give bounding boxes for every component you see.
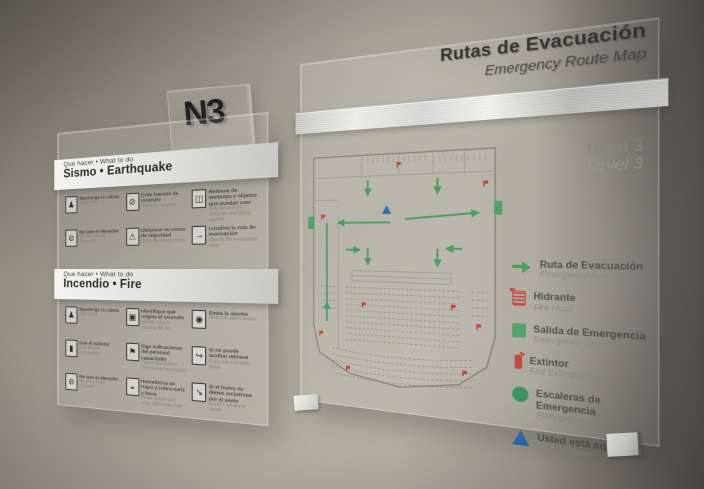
person-calm-icon: ♟ bbox=[65, 196, 77, 214]
pictogram-caption: Use el extintor Use the fire extinguishe… bbox=[79, 340, 120, 358]
level-label: Nivel 3 Level 3 bbox=[587, 137, 644, 175]
pictogram-item: ◒ Humedezca un trapo y cubra nariz y boc… bbox=[126, 377, 190, 418]
safety-zone-icon: ⚠ bbox=[126, 228, 139, 246]
caption-en: Use the fire extinguisher bbox=[79, 346, 120, 359]
what-to-do-section: Que hacer • What to do Sismo • Earthquak… bbox=[58, 143, 267, 263]
no-elevator-icon: ⊘ bbox=[65, 229, 77, 246]
stairs-circle-icon bbox=[512, 386, 528, 403]
pictogram-item: ▣ Identifique qué origina el incendio Id… bbox=[126, 308, 190, 346]
caption-en: Stay calm bbox=[79, 312, 120, 318]
caption-en: Stay calm bbox=[79, 199, 120, 206]
caption-en: Identify the evacuation route bbox=[209, 237, 258, 249]
pictogram-caption: Mantenga la calma Stay calm bbox=[79, 194, 120, 207]
legend-text: Extintor Fire Extinguisher bbox=[530, 356, 601, 384]
hydrant-icon bbox=[512, 291, 526, 307]
pictogram-caption: Siga indicaciones del personal capacitad… bbox=[141, 343, 186, 374]
route-arrow-icon bbox=[512, 259, 532, 276]
brushed-metal-band bbox=[295, 78, 668, 135]
fire-origin-icon: ▣ bbox=[126, 308, 139, 326]
crawl-low-icon: ↘ bbox=[192, 382, 207, 402]
pictogram-item: ↪ Si no puede auxiliar retírese If you c… bbox=[192, 346, 262, 388]
pictogram-caption: No use el elevador Do not use the elevat… bbox=[79, 374, 120, 393]
legend-item: Escaleras de Emergencia Emergency Stairs bbox=[512, 386, 658, 436]
caption-en: Identify what is causing the fire bbox=[141, 320, 186, 332]
pictogram-item: ⊘ No use el elevador Do not use the elev… bbox=[65, 228, 124, 263]
caption-en: Go to the safety zones bbox=[141, 238, 186, 244]
route-exit-icon: → bbox=[192, 226, 207, 245]
pictogram-item: ⊘ No use el elevador Do not use the elev… bbox=[65, 373, 124, 412]
legend-text: Usted está aquí You are here bbox=[537, 432, 616, 465]
plan-outline bbox=[314, 148, 495, 398]
section-header-main: Incendio • Fire bbox=[63, 278, 278, 293]
pictogram-item: ⊘ Evite fuentes de incendio Avoid fire s… bbox=[126, 190, 190, 228]
what-to-do-sign: Que hacer • What to do Sismo • Earthquak… bbox=[57, 112, 268, 427]
pictogram-caption: Si el humo es denso arrástrese por el su… bbox=[209, 384, 258, 418]
pictogram-item: ♟ Mantenga la calma Stay calm bbox=[65, 193, 124, 229]
pictogram-caption: Si no puede auxiliar retírese If you can… bbox=[209, 347, 258, 373]
caption-en: Avoid fire sources bbox=[141, 202, 186, 209]
person-calm-icon: ♟ bbox=[65, 306, 77, 324]
legend-item: Salida de Emergencia Emergency Exit bbox=[512, 322, 658, 354]
mounting-clip-right bbox=[606, 432, 641, 457]
wet-cloth-icon: ◒ bbox=[126, 377, 139, 396]
legend-text: Salida de Emergencia Emergency Exit bbox=[533, 324, 645, 353]
caption-en: Follow instructions from trained personn… bbox=[141, 361, 186, 375]
pictogram-item: ♟ Mantenga la calma Stay calm bbox=[65, 306, 124, 342]
you-are-here-triangle-icon bbox=[512, 429, 529, 447]
no-elevator-icon: ⊘ bbox=[65, 373, 77, 391]
alarm-button-icon: ◉ bbox=[192, 310, 207, 329]
leave-if-no-help-icon: ↪ bbox=[192, 346, 207, 366]
wall-photo: N3 Que hacer • What to do Sismo • Earthq… bbox=[0, 0, 704, 489]
pictogram-item: → Localice la ruta de evacuación Identif… bbox=[192, 224, 262, 262]
falling-objects-icon: ◫ bbox=[192, 189, 207, 208]
pictogram-item: ◉ Emita la alarma Push the alarm button bbox=[192, 310, 262, 350]
caption-en: If you can not help, leave bbox=[209, 359, 258, 373]
pictogram-caption: Mantenga la calma Stay calm bbox=[79, 307, 120, 319]
follow-staff-icon: ⚑ bbox=[126, 343, 139, 362]
pictogram-item: ⚠ Ubíquese en zonas de seguridad Go to t… bbox=[126, 226, 190, 263]
legend-text: Escaleras de Emergencia Emergency Stairs bbox=[536, 389, 658, 436]
caption-en: Stay away from windows and falling objec… bbox=[209, 205, 258, 224]
legend-label-en: Fire Hose bbox=[533, 302, 575, 314]
caption-en: Do not use the elevator bbox=[79, 234, 120, 245]
pictogram-item: ↘ Si el humo es denso arrástrese por el … bbox=[192, 382, 262, 425]
pictogram-caption: Identifique qué origina el incendio Iden… bbox=[141, 308, 186, 332]
extinguisher-use-icon: ▮ bbox=[65, 339, 77, 357]
no-fire-sources-icon: ⊘ bbox=[126, 193, 139, 212]
pictogram-caption: Localice la ruta de evacuación Identify … bbox=[209, 224, 258, 248]
legend-item: Hidrante Fire Hose bbox=[512, 291, 658, 319]
pictogram-caption: Humedezca un trapo y cubra nariz y boca … bbox=[141, 378, 186, 410]
pictogram-caption: Retírese de ventanas y objetos que pueda… bbox=[209, 186, 258, 223]
what-to-do-sections: Que hacer • What to do Sismo • Earthquak… bbox=[58, 113, 267, 425]
legend-label-en: Emergency Route bbox=[540, 270, 644, 284]
what-to-do-section: Que hacer • What to do Incendio • Fire ♟… bbox=[58, 269, 267, 426]
pictogram-caption: Evite fuentes de incendio Avoid fire sou… bbox=[141, 190, 186, 209]
pictogram-caption: Emita la alarma Push the alarm button bbox=[209, 310, 258, 323]
extinguisher-icon bbox=[515, 355, 522, 370]
pictogram-grid: ♟ Mantenga la calma Stay calm ⊘ Evite fu… bbox=[58, 178, 267, 263]
caption-en: Push the alarm button bbox=[209, 316, 258, 323]
legend-item: Ruta de Evacuación Emergency Route bbox=[512, 259, 658, 284]
pictogram-item: ⚑ Siga indicaciones del personal capacit… bbox=[126, 343, 190, 383]
exit-square-icon bbox=[512, 322, 526, 337]
level-label-en: Level 3 bbox=[587, 155, 644, 175]
pictogram-caption: No use el elevador Do not use the elevat… bbox=[79, 228, 120, 245]
legend-item: Extintor Fire Extinguisher bbox=[512, 354, 658, 389]
mounting-clip-left bbox=[294, 394, 319, 411]
evacuation-map-sign: Rutas de Evacuación Emergency Route Map … bbox=[300, 17, 659, 447]
section-header-strip: Que hacer • What to do Incendio • Fire bbox=[54, 269, 278, 304]
legend-text: Ruta de Evacuación Emergency Route bbox=[540, 259, 644, 283]
pictogram-grid: ♟ Mantenga la calma Stay calm ▣ Identifi… bbox=[58, 299, 267, 426]
pictogram-item: ◫ Retírese de ventanas y objetos que pue… bbox=[192, 186, 262, 226]
floor-plan-map bbox=[308, 141, 502, 426]
pictogram-item: ▮ Use el extintor Use the fire extinguis… bbox=[65, 339, 124, 377]
pictogram-caption: Ubíquese en zonas de seguridad Go to the… bbox=[141, 226, 186, 244]
map-title: Rutas de Evacuación Emergency Route Map bbox=[440, 20, 646, 83]
legend-text: Hidrante Fire Hose bbox=[533, 291, 575, 314]
